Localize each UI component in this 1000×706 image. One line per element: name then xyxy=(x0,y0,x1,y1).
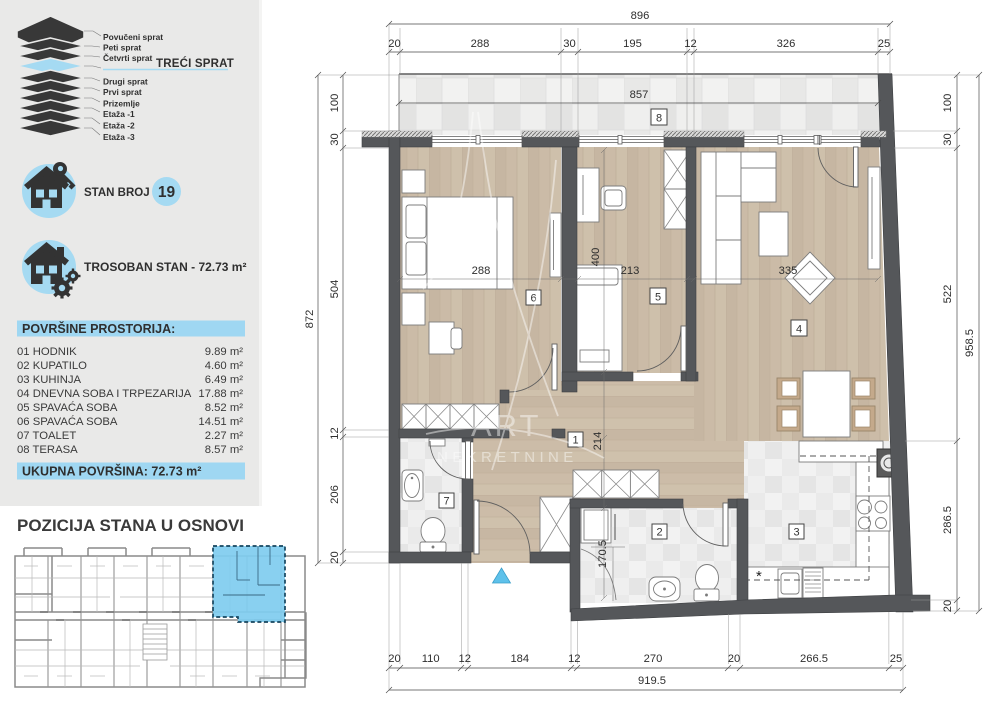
svg-text:2.27 m²: 2.27 m² xyxy=(205,430,244,442)
svg-text:110: 110 xyxy=(422,653,440,665)
svg-text:288: 288 xyxy=(472,265,491,277)
svg-text:19: 19 xyxy=(158,184,176,201)
svg-text:213: 213 xyxy=(621,265,640,277)
svg-text:TREĆI SPRAT: TREĆI SPRAT xyxy=(156,57,234,70)
svg-text:522: 522 xyxy=(942,285,954,304)
svg-text:08 TERASA: 08 TERASA xyxy=(17,444,78,456)
svg-text:NEKRETNINE: NEKRETNINE xyxy=(437,449,578,466)
svg-text:270: 270 xyxy=(644,653,663,665)
svg-text:8.52 m²: 8.52 m² xyxy=(205,402,244,414)
svg-text:20: 20 xyxy=(942,600,954,612)
svg-text:Etaža -3: Etaža -3 xyxy=(103,132,135,142)
svg-text:30: 30 xyxy=(563,38,575,50)
svg-text:919.5: 919.5 xyxy=(638,675,666,687)
svg-text:6.49 m²: 6.49 m² xyxy=(205,374,244,386)
svg-text:Četvrti sprat: Četvrti sprat xyxy=(103,52,153,63)
svg-text:958.5: 958.5 xyxy=(964,329,976,357)
svg-text:12: 12 xyxy=(458,653,470,665)
svg-text:02 KUPATILO: 02 KUPATILO xyxy=(17,360,87,372)
svg-text:POZICIJA STANA U OSNOVI: POZICIJA STANA U OSNOVI xyxy=(17,516,244,535)
svg-text:03 KUHINJA: 03 KUHINJA xyxy=(17,374,82,386)
svg-text:TROSOBAN STAN - 72.73 m²: TROSOBAN STAN - 72.73 m² xyxy=(84,260,246,274)
svg-text:335: 335 xyxy=(779,265,798,277)
svg-text:288: 288 xyxy=(471,38,490,50)
svg-text:Povučeni sprat: Povučeni sprat xyxy=(103,32,163,42)
svg-text:857: 857 xyxy=(630,89,649,101)
svg-text:195: 195 xyxy=(623,38,642,50)
svg-text:Drugi sprat: Drugi sprat xyxy=(103,77,148,87)
svg-text:Prvi sprat: Prvi sprat xyxy=(103,87,142,97)
svg-text:Peti sprat: Peti sprat xyxy=(103,43,141,53)
svg-text:04 DNEVNA SOBA I TRPEZARIJA: 04 DNEVNA SOBA I TRPEZARIJA xyxy=(17,388,192,400)
svg-text:266.5: 266.5 xyxy=(800,653,828,665)
svg-text:POVRŠINE PROSTORIJA:: POVRŠINE PROSTORIJA: xyxy=(22,321,175,336)
svg-text:8: 8 xyxy=(656,113,662,125)
svg-text:100: 100 xyxy=(942,94,954,113)
svg-text:17.88 m²: 17.88 m² xyxy=(198,388,243,400)
svg-text:9.89 m²: 9.89 m² xyxy=(205,346,244,358)
svg-text:3: 3 xyxy=(793,527,799,539)
svg-text:896: 896 xyxy=(631,10,650,22)
svg-text:Etaža -2: Etaža -2 xyxy=(103,121,135,131)
svg-text:Prizemlje: Prizemlje xyxy=(103,99,140,109)
svg-text:ART: ART xyxy=(471,408,541,443)
svg-text:20: 20 xyxy=(388,653,400,665)
svg-text:05 SPAVAĆA SOBA: 05 SPAVAĆA SOBA xyxy=(17,401,118,414)
svg-text:206: 206 xyxy=(329,485,341,504)
svg-text:20: 20 xyxy=(388,38,400,50)
svg-text:*: * xyxy=(756,568,762,585)
svg-text:8.57 m²: 8.57 m² xyxy=(205,444,244,456)
svg-text:400: 400 xyxy=(590,248,602,267)
svg-text:214: 214 xyxy=(592,432,604,451)
svg-text:06 SPAVAĆA SOBA: 06 SPAVAĆA SOBA xyxy=(17,415,118,428)
svg-text:4: 4 xyxy=(796,324,802,336)
svg-text:25: 25 xyxy=(878,38,890,50)
svg-text:Etaža -1: Etaža -1 xyxy=(103,109,135,119)
svg-text:2: 2 xyxy=(656,527,662,539)
svg-text:STAN BROJ: STAN BROJ xyxy=(84,187,150,199)
svg-text:170.5: 170.5 xyxy=(597,540,609,568)
svg-text:25: 25 xyxy=(890,653,902,665)
svg-text:12: 12 xyxy=(329,427,341,439)
svg-text:100: 100 xyxy=(329,94,341,113)
svg-text:7: 7 xyxy=(443,496,449,508)
svg-text:30: 30 xyxy=(942,133,954,145)
svg-text:07 TOALET: 07 TOALET xyxy=(17,430,76,442)
svg-text:20: 20 xyxy=(728,653,740,665)
svg-text:504: 504 xyxy=(329,280,341,299)
svg-text:872: 872 xyxy=(304,310,316,329)
svg-text:UKUPNA POVRŠINA: 72.73 m²: UKUPNA POVRŠINA: 72.73 m² xyxy=(22,464,201,479)
svg-text:12: 12 xyxy=(684,38,696,50)
svg-text:20: 20 xyxy=(329,551,341,563)
svg-text:286.5: 286.5 xyxy=(942,506,954,534)
svg-text:01 HODNIK: 01 HODNIK xyxy=(17,346,77,358)
svg-text:326: 326 xyxy=(777,38,796,50)
svg-text:184: 184 xyxy=(510,653,529,665)
svg-text:12: 12 xyxy=(568,653,580,665)
svg-text:30: 30 xyxy=(329,133,341,145)
svg-text:14.51 m²: 14.51 m² xyxy=(198,416,243,428)
svg-text:5: 5 xyxy=(655,292,661,304)
svg-text:4.60 m²: 4.60 m² xyxy=(205,360,244,372)
